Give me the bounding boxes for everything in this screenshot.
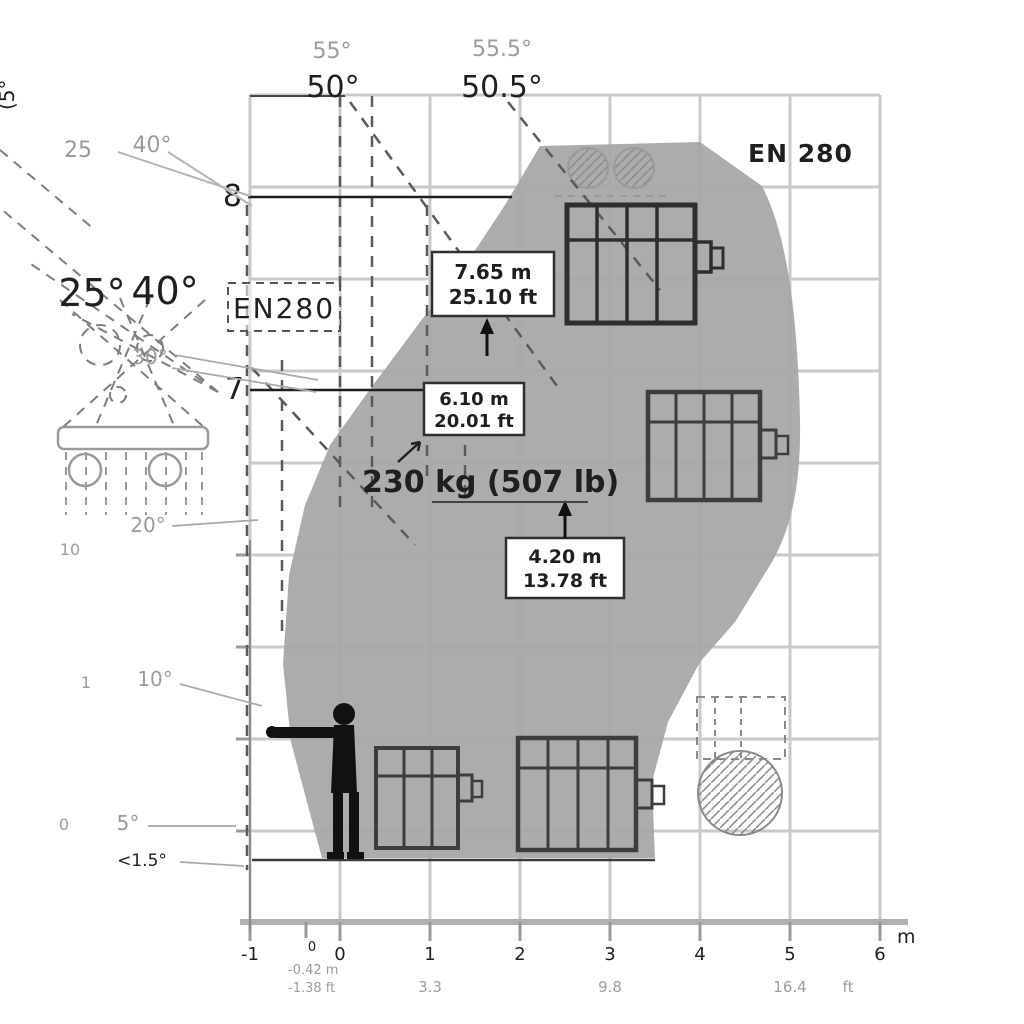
angle-20: 20° [130, 513, 165, 537]
envelope-standard-label: EN280 [233, 292, 335, 325]
dim2-m: 6.10 m [439, 389, 508, 410]
angle-5: 5° [117, 811, 140, 835]
x-tick: 0 [334, 944, 345, 965]
x-tick-ft: 9.8 [598, 978, 622, 996]
angle-1-5: <1.5° [117, 851, 167, 871]
leader-25 [118, 152, 250, 196]
angle-25-black: 25° [58, 271, 125, 315]
x-axis-labels: -1 0 1 2 3 4 5 6 m 3.3 9.8 16.4 ft 0 -0.… [241, 926, 915, 996]
scale-1: 1 [81, 673, 91, 692]
dim3-ft: 13.78 ft [523, 570, 607, 592]
dim1-m: 7.65 m [454, 260, 531, 284]
dim1-ft: 25.10 ft [449, 285, 538, 309]
origin-zero: 0 [308, 940, 316, 955]
diagram-canvas: -1 0 1 2 3 4 5 6 m 3.3 9.8 16.4 ft 0 -0.… [0, 0, 1024, 1024]
leader-20 [172, 520, 258, 526]
dim-box-2: 6.10 m 20.01 ft [424, 383, 524, 435]
grid-standard-label: EN 280 [748, 139, 853, 168]
x-tick-ft: 16.4 [773, 978, 806, 996]
leader-1-5 [180, 862, 244, 866]
envelope-diagram: -1 0 1 2 3 4 5 6 m 3.3 9.8 16.4 ft 0 -0.… [0, 0, 1024, 1024]
angle-40-gray: 40° [133, 133, 172, 158]
x-tick: 1 [424, 944, 435, 965]
origin-note-ft: -1.38 ft [288, 981, 335, 996]
scale-10: 10 [60, 540, 80, 559]
machine-chassis [58, 427, 208, 515]
x-tick: 3 [604, 944, 615, 965]
x-tick: 4 [694, 944, 705, 965]
angle-55: 55° [313, 39, 352, 64]
scale-0: 0 [59, 815, 69, 834]
angle-50-5: 50.5° [461, 70, 543, 105]
angle-vertical-top-left: (5° [0, 79, 19, 110]
angle-55-5: 55.5° [472, 37, 532, 62]
x-tick-ft: 3.3 [418, 978, 442, 996]
angle-25-gray: 25 [64, 138, 92, 163]
height-label-8: 8 [223, 179, 242, 214]
x-tick: 6 [874, 944, 885, 965]
angle-40-black: 40° [131, 269, 198, 313]
angle-30: 30° [132, 345, 167, 369]
x-tick: -1 [241, 944, 259, 965]
x-tick: 2 [514, 944, 525, 965]
origin-note-m: -0.42 m [288, 963, 338, 978]
x-axis-unit-m: m [897, 926, 916, 948]
angle-10: 10° [137, 667, 172, 691]
dim2-ft: 20.01 ft [434, 411, 514, 432]
capacity-label: 230 kg (507 lb) [362, 465, 619, 500]
x-axis-unit-ft: ft [843, 978, 854, 996]
dim3-m: 4.20 m [528, 546, 601, 568]
x-tick: 5 [784, 944, 795, 965]
angle-50: 50° [306, 70, 359, 105]
